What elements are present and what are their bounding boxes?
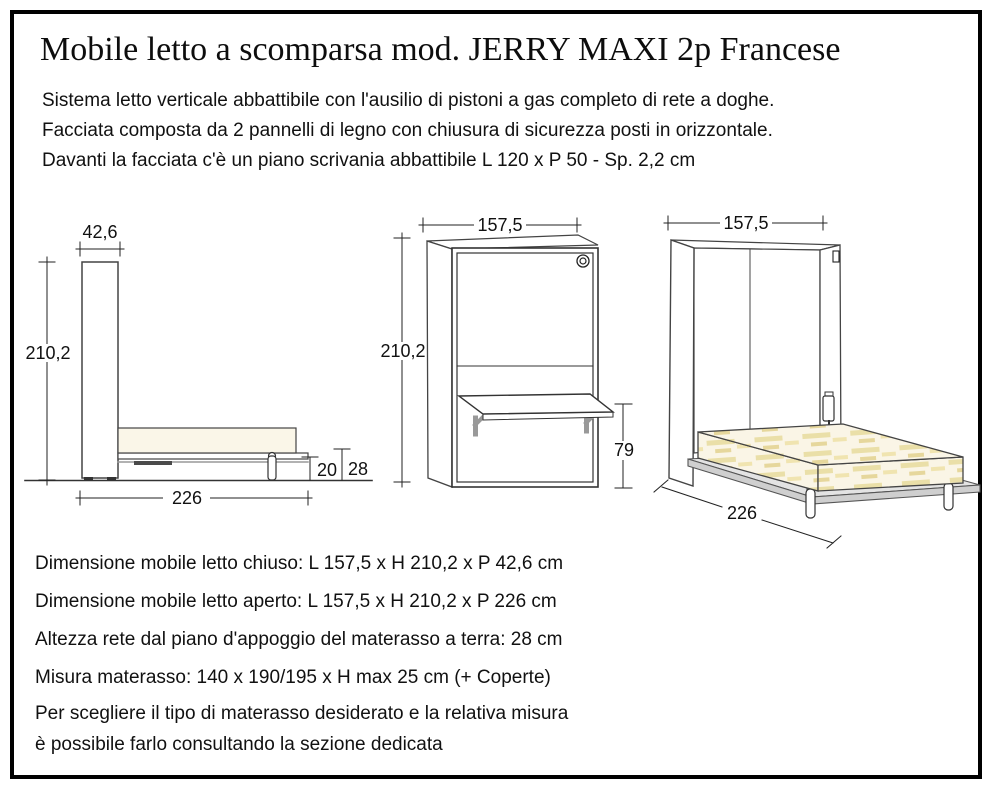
side-cabinet-body (82, 262, 118, 478)
dim-length-side-label: 226 (172, 488, 202, 508)
drawing-perspective-open: 157,5 226 (654, 213, 980, 548)
page-title: Mobile letto a scomparsa mod. JERRY MAXI… (40, 33, 840, 67)
spec-line-slat-height: Altezza rete dal piano d'appoggio del ma… (35, 621, 563, 659)
dim-height-front-label: 210,2 (380, 341, 425, 361)
drawing-front-closed: 157,5 210,2 79 (380, 215, 639, 488)
dim-desk-height-label: 79 (614, 440, 634, 460)
description-line-2: Facciata composta da 2 pannelli di legno… (42, 116, 774, 146)
dim-frame-gap-label: 20 (317, 460, 337, 480)
side-bed-leg (268, 456, 276, 480)
side-bed-frame (118, 453, 308, 459)
front-cabinet-top (427, 235, 598, 249)
description-line-3: Davanti la facciata c'è un piano scrivan… (42, 146, 774, 176)
side-frame-dark-bar (134, 461, 172, 465)
technical-drawings: 42,6 210,2 226 20 28 (0, 195, 1000, 555)
description-block: Sistema letto verticale abbattibile con … (42, 86, 774, 176)
note-line-1: Per scegliere il tipo di materasso desid… (35, 698, 568, 729)
persp-cabinet-back (694, 248, 820, 453)
note-line-2: è possibile farlo consultando la sezione… (35, 729, 568, 760)
dim-length-persp-label: 226 (727, 503, 757, 523)
persp-cabinet-left-panel (669, 240, 694, 486)
dim-depth-closed-label: 42,6 (82, 222, 117, 242)
drawing-side-open: 42,6 210,2 226 20 28 (25, 222, 372, 508)
front-cabinet-face (452, 248, 598, 487)
note-block: Per scegliere il tipo di materasso desid… (35, 698, 568, 760)
specs-block: Dimensione mobile letto chiuso: L 157,5 … (35, 545, 563, 697)
dim-width-front-label: 157,5 (477, 215, 522, 235)
dim-depth-closed (76, 242, 124, 256)
spec-line-open: Dimensione mobile letto aperto: L 157,5 … (35, 583, 563, 621)
desk-top (459, 394, 613, 414)
dim-frame-gap (302, 457, 318, 480)
dim-height-side-label: 210,2 (25, 343, 70, 363)
side-mattress (118, 428, 296, 453)
persp-lock (833, 251, 839, 262)
description-line-1: Sistema letto verticale abbattibile con … (42, 86, 774, 116)
dim-width-persp-label: 157,5 (723, 213, 768, 233)
front-cabinet-side (427, 241, 452, 487)
spec-line-mattress: Misura materasso: 140 x 190/195 x H max … (35, 659, 563, 697)
dim-bed-height-label: 28 (348, 459, 368, 479)
spec-line-closed: Dimensione mobile letto chiuso: L 157,5 … (35, 545, 563, 583)
dim-height-side (39, 257, 55, 485)
